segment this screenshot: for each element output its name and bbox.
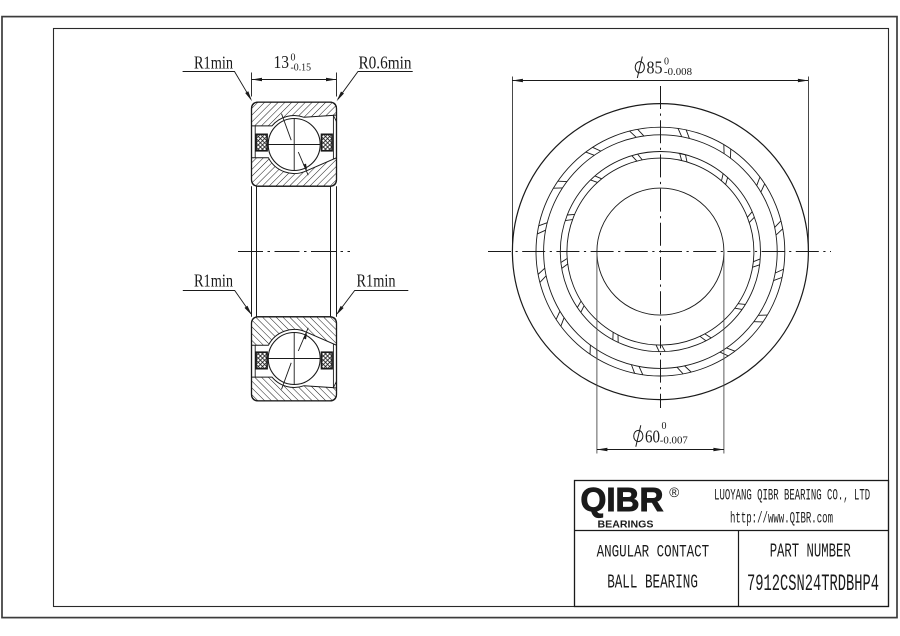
svg-text:13: 13	[274, 52, 290, 72]
svg-text:ANGULAR CONTACT: ANGULAR CONTACT	[597, 542, 710, 562]
svg-text:60: 60	[645, 426, 660, 446]
svg-text:QIBR: QIBR	[581, 481, 664, 518]
svg-text:0: 0	[662, 420, 667, 432]
svg-text:-0.15: -0.15	[291, 62, 312, 74]
svg-text:R1min: R1min	[194, 271, 233, 291]
svg-text:R1min: R1min	[357, 271, 396, 291]
svg-text:http://www.QIBR.com: http://www.QIBR.com	[730, 510, 833, 528]
svg-text:LUOYANG QIBR BEARING CO., LTD: LUOYANG QIBR BEARING CO., LTD	[714, 487, 870, 505]
svg-text:7912CSN24TRDBHP4: 7912CSN24TRDBHP4	[747, 571, 879, 597]
svg-text:-0.007: -0.007	[660, 435, 688, 447]
svg-text:R0.6min: R0.6min	[359, 52, 412, 72]
svg-text:85: 85	[647, 58, 663, 78]
svg-text:R1min: R1min	[194, 52, 233, 72]
svg-text:BALL BEARING: BALL BEARING	[607, 572, 698, 594]
svg-text:BEARINGS: BEARINGS	[598, 519, 654, 530]
svg-text:-0.008: -0.008	[664, 66, 692, 78]
svg-text:PART NUMBER: PART NUMBER	[770, 540, 851, 562]
svg-text:®: ®	[669, 485, 679, 500]
